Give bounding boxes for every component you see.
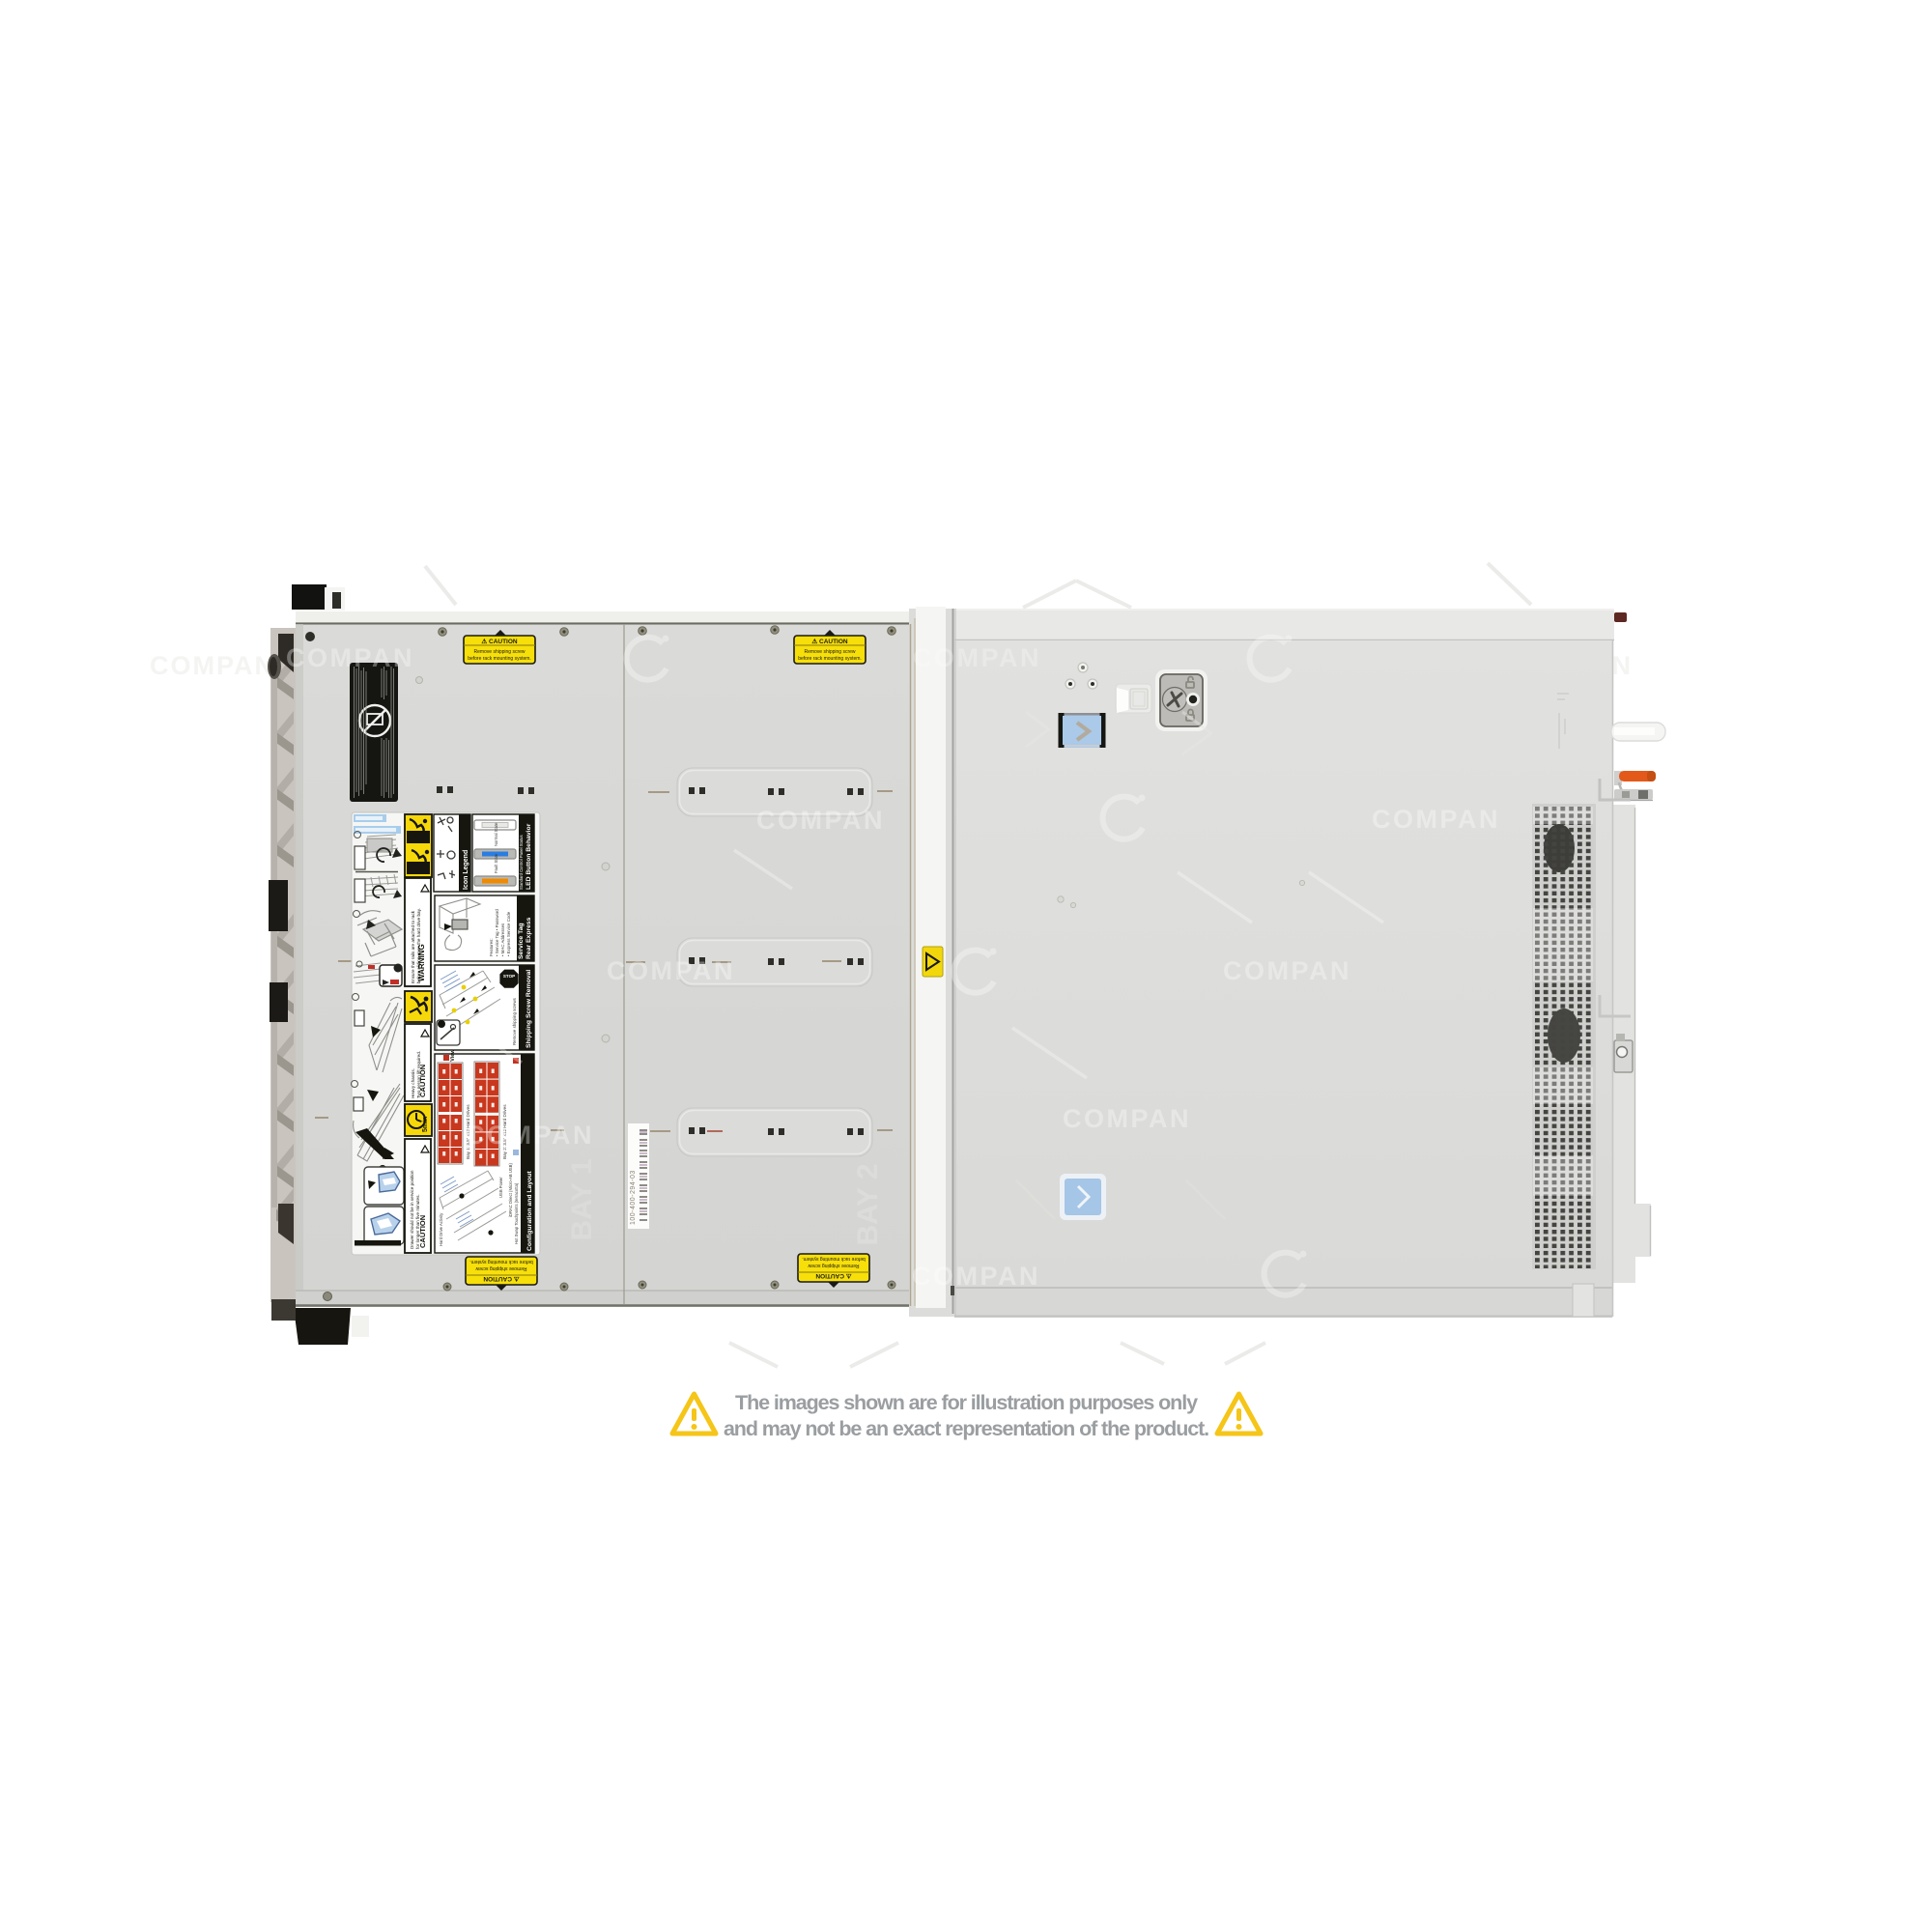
svg-text:Shipping Screw Removal: Shipping Screw Removal: [526, 970, 532, 1048]
svg-text:Icon Legend: Icon Legend: [463, 850, 469, 890]
svg-text:Remove shipping screw: Remove shipping screw: [808, 1263, 859, 1268]
svg-text:Fault State: Fault State: [494, 853, 498, 873]
svg-text:Hard Drive Activity: Hard Drive Activity: [439, 1212, 443, 1246]
svg-text:Heavy chassis.: Heavy chassis.: [411, 1068, 415, 1098]
svg-text:• Service Tag • Password: • Service Tag • Password: [495, 909, 499, 956]
svg-text:Remove shipping screws: Remove shipping screws: [512, 997, 517, 1045]
svg-text:Standard Control Panel Status: Standard Control Panel Status: [519, 835, 524, 890]
svg-text:• Express Service Code: • Express Service Code: [506, 911, 511, 956]
svg-text:• MAC Addresses: • MAC Addresses: [500, 923, 505, 956]
svg-text:Remove shipping screw: Remove shipping screw: [475, 1265, 526, 1271]
svg-text:before rack mounting system.: before rack mounting system.: [802, 1256, 866, 1262]
svg-text:⚠ CAUTION: ⚠ CAUTION: [483, 1275, 520, 1283]
svg-text:The images shown are for illus: The images shown are for illustration pu…: [735, 1391, 1198, 1414]
svg-text:5min: 5min: [422, 1117, 429, 1132]
svg-text:and may not be an exact repres: and may not be an exact representation o…: [724, 1417, 1208, 1440]
svg-text:BAY 1: BAY 1: [566, 1158, 598, 1240]
svg-text:Hot Swap Touchpoints (terracot: Hot Swap Touchpoints (terracotta): [514, 1182, 519, 1244]
svg-text:COMPAN: COMPAN: [466, 1121, 594, 1150]
svg-text:COMPAN: COMPAN: [150, 651, 275, 680]
svg-text:LED Button Behavior: LED Button Behavior: [526, 823, 532, 890]
svg-text:Service Tag: Service Tag: [518, 923, 525, 959]
svg-text:COMPAN: COMPAN: [912, 1262, 1040, 1291]
svg-text:Remove shipping screw: Remove shipping screw: [804, 649, 855, 655]
svg-text:COMPAN: COMPAN: [756, 806, 885, 835]
svg-text:iDRAC Direct (Micro-AB USB): iDRAC Direct (Micro-AB USB): [508, 1163, 513, 1217]
svg-text:Two person lift required.: Two person lift required.: [416, 1051, 421, 1098]
svg-text:Normal State: Normal State: [494, 822, 498, 846]
svg-text:Rear Express: Rear Express: [526, 917, 532, 959]
svg-text:Remove shipping screw: Remove shipping screw: [473, 649, 525, 655]
svg-text:Features:: Features:: [489, 938, 494, 956]
svg-text:Ensure that rails are attached: Ensure that rails are attached to rack: [411, 910, 415, 983]
svg-text:before rack mounting system.: before rack mounting system.: [468, 656, 531, 662]
svg-text:before rack mounting system.: before rack mounting system.: [798, 656, 862, 662]
svg-text:before rack mounting system.: before rack mounting system.: [469, 1259, 533, 1264]
svg-text:⚠ CAUTION: ⚠ CAUTION: [811, 638, 848, 645]
svg-text:for longer than five minutes.: for longer than five minutes.: [415, 1194, 420, 1249]
svg-text:Drawer should not be in servic: Drawer should not be in service position: [410, 1170, 414, 1249]
svg-text:Configuration and Layout: Configuration and Layout: [526, 1171, 533, 1251]
svg-text:COMPAN: COMPAN: [1372, 805, 1500, 834]
svg-text:USB Power: USB Power: [498, 1177, 503, 1198]
svg-text:⚠ CAUTION: ⚠ CAUTION: [815, 1272, 852, 1280]
svg-text:COMPAN: COMPAN: [1063, 1104, 1191, 1133]
svg-text:COMPAN: COMPAN: [1223, 956, 1351, 985]
svg-text:STOP: STOP: [503, 974, 515, 979]
svg-text:COMPAN: COMPAN: [607, 956, 735, 985]
svg-text:100-400-294-03: 100-400-294-03: [630, 1170, 637, 1225]
svg-text:COMPAN: COMPAN: [913, 643, 1041, 672]
svg-text:COMPAN: COMPAN: [286, 643, 414, 672]
svg-text:⚠ CAUTION: ⚠ CAUTION: [481, 638, 518, 645]
svg-text:BAY 2: BAY 2: [852, 1163, 884, 1245]
svg-text:before sliding open the hard d: before sliding open the hard drive bay.: [416, 908, 421, 983]
